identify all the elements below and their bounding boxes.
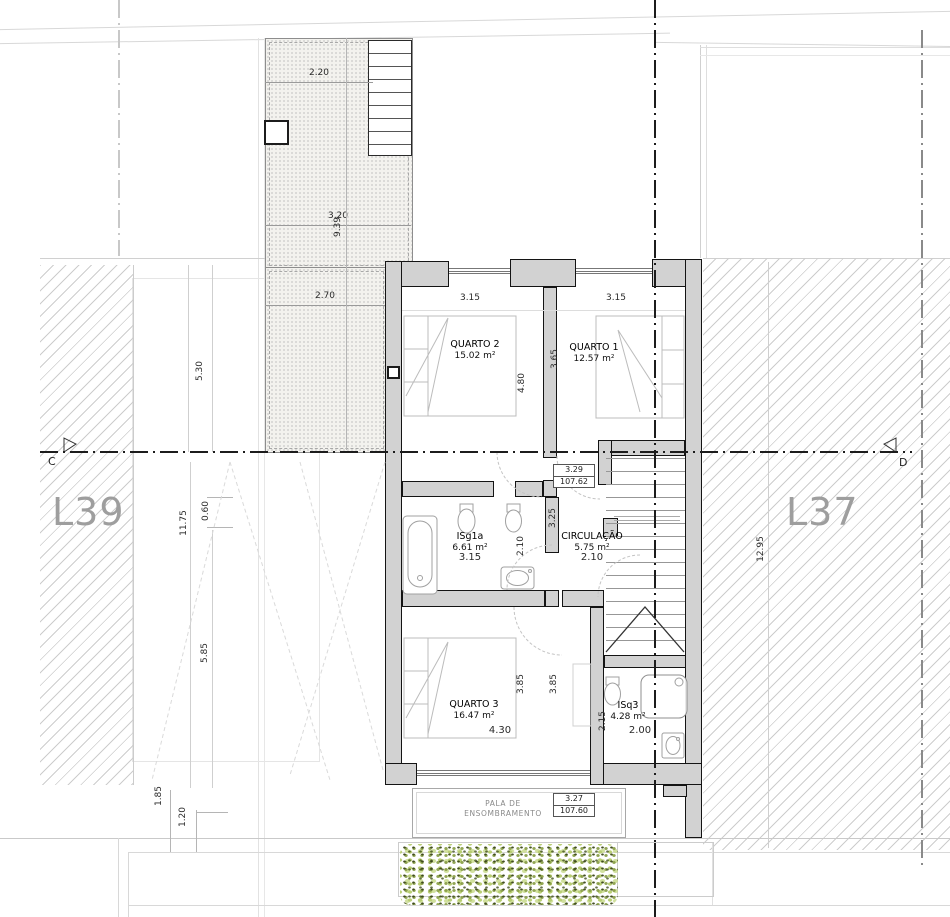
lot-axis-center [654, 0, 656, 917]
level-marker-upper: 3.29 107.62 [553, 464, 595, 488]
dim-q2-width: 3.15 [450, 293, 490, 303]
dim-isq3-width: 2.00 [620, 725, 660, 736]
dim-q1-width: 3.15 [596, 293, 636, 303]
room-area: 15.02 m² [425, 351, 525, 363]
lot-label-right: L37 [786, 490, 859, 534]
section-flag-c [64, 438, 76, 452]
dim-isg1a-depth: 2.10 [516, 526, 526, 566]
fixtures-layer [0, 0, 950, 917]
shading-canopy-label: PALA DE ENSOMBRAMENTO [448, 799, 558, 818]
dim-q2-depth: 4.80 [517, 363, 527, 403]
dim-q3-depth-a: 3.85 [516, 664, 526, 704]
room-label-quarto3: QUARTO 3 16.47 m² [424, 699, 524, 722]
dim-circ-depth: 3.25 [548, 498, 558, 538]
dim-circ-width: 2.10 [572, 552, 612, 563]
room-name: QUARTO 2 [425, 339, 525, 351]
canopy-label-line1: PALA DE [448, 799, 558, 809]
canopy-label-line2: ENSOMBRAMENTO [448, 809, 558, 819]
floor-plan-drawing: 2.20 3.20 2.70 9.39 5.30 11.75 0.60 5.85… [0, 0, 950, 917]
section-flag-d [884, 438, 896, 452]
room-area: 16.47 m² [424, 711, 524, 723]
section-marker-c: C [48, 455, 56, 468]
lot-axis-right [921, 30, 923, 868]
dim-q3-width: 4.30 [480, 725, 520, 736]
dim-q3-depth-b: 3.85 [549, 664, 559, 704]
room-label-isg1a: ISg1a 6.61 m² [420, 531, 520, 554]
level-height: 3.29 [554, 465, 594, 477]
room-name: QUARTO 3 [424, 699, 524, 711]
level-elevation: 107.62 [554, 477, 594, 488]
dim-isg1a-width: 3.15 [450, 552, 490, 563]
section-marker-d: D [899, 456, 907, 469]
dim-isq3-depth: 2.15 [598, 701, 608, 741]
room-name: ISg1a [420, 531, 520, 543]
room-label-quarto2: QUARTO 2 15.02 m² [425, 339, 525, 362]
lot-axis-left [118, 0, 120, 256]
section-axis-cd [40, 451, 912, 453]
hedge-vegetation [400, 844, 618, 905]
lot-label-left: L39 [52, 490, 125, 534]
dim-q1-depth: 3.65 [550, 339, 560, 379]
